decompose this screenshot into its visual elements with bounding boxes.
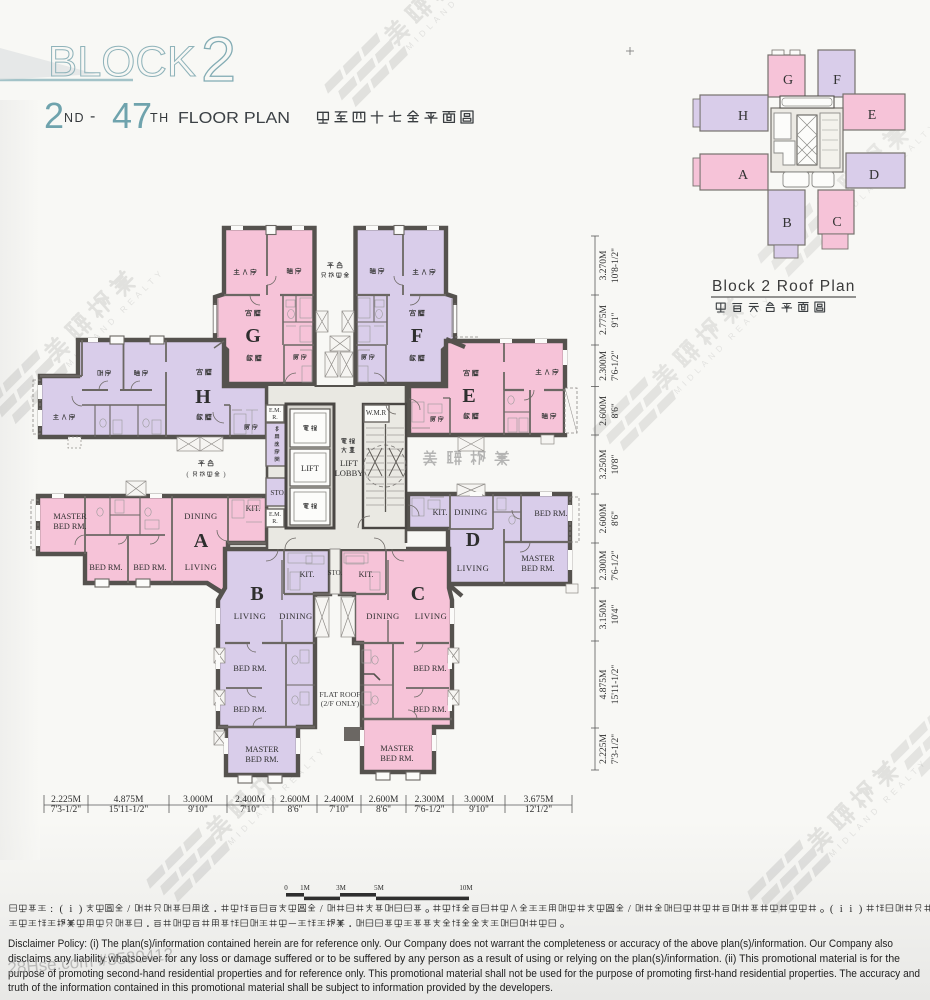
svg-text:2.300M: 2.300M bbox=[599, 350, 609, 380]
svg-text:KIT.: KIT. bbox=[300, 570, 315, 579]
svg-text:8'6": 8'6" bbox=[287, 805, 302, 815]
svg-text:LIFT: LIFT bbox=[301, 463, 320, 473]
svg-text:(2/F ONLY): (2/F ONLY) bbox=[321, 699, 360, 708]
svg-text:DINING: DINING bbox=[184, 511, 218, 521]
svg-text:MASTER: MASTER bbox=[245, 745, 279, 754]
svg-text:BED RM.: BED RM. bbox=[133, 563, 166, 572]
svg-text:F: F bbox=[411, 325, 423, 347]
svg-text:3M: 3M bbox=[336, 884, 347, 892]
svg-text:3.675M: 3.675M bbox=[524, 795, 554, 805]
svg-text:BED RM.: BED RM. bbox=[413, 664, 446, 673]
svg-text:G: G bbox=[783, 73, 793, 88]
svg-text:R.: R. bbox=[272, 519, 278, 525]
svg-text:purpose of promoting second-ha: purpose of promoting second-hand residen… bbox=[8, 968, 920, 980]
svg-text:3.000M: 3.000M bbox=[464, 795, 494, 805]
svg-text:DINING: DINING bbox=[454, 507, 488, 517]
svg-text:8'6": 8'6" bbox=[611, 511, 621, 526]
svg-text:2.600M: 2.600M bbox=[599, 503, 609, 533]
svg-text:BED RM.: BED RM. bbox=[233, 705, 266, 714]
svg-text:BLOCK: BLOCK bbox=[48, 38, 196, 86]
svg-text:3.270M: 3.270M bbox=[599, 250, 609, 280]
svg-text:10'8-1/2": 10'8-1/2" bbox=[611, 248, 621, 283]
svg-text:E: E bbox=[462, 385, 475, 407]
svg-text:E.M.: E.M. bbox=[269, 512, 282, 518]
svg-text:-: - bbox=[90, 108, 95, 125]
svg-text:BED RM.: BED RM. bbox=[245, 755, 278, 764]
svg-text:FLAT ROOF: FLAT ROOF bbox=[319, 690, 361, 699]
svg-text:FLOOR PLAN: FLOOR PLAN bbox=[178, 110, 290, 127]
svg-text:E: E bbox=[868, 108, 877, 123]
svg-text:BED RM.: BED RM. bbox=[521, 564, 554, 573]
svg-text:15'11-1/2": 15'11-1/2" bbox=[109, 805, 149, 815]
svg-text:9'10": 9'10" bbox=[469, 805, 489, 815]
svg-text:10M: 10M bbox=[459, 884, 473, 892]
svg-text:D: D bbox=[466, 529, 480, 551]
svg-text:): ) bbox=[859, 903, 863, 915]
svg-text:D: D bbox=[869, 168, 879, 183]
svg-text:2.600M: 2.600M bbox=[599, 395, 609, 425]
svg-text:A: A bbox=[738, 168, 749, 183]
svg-text:LIVING: LIVING bbox=[457, 563, 490, 573]
svg-text:C: C bbox=[832, 215, 841, 230]
svg-text:4.875M: 4.875M bbox=[599, 669, 609, 699]
svg-text:9'1": 9'1" bbox=[611, 312, 621, 327]
svg-text:5M: 5M bbox=[374, 884, 385, 892]
svg-text:/: / bbox=[628, 903, 631, 915]
svg-text:7'10": 7'10" bbox=[240, 805, 260, 815]
svg-text:Block 2 Roof Plan: Block 2 Roof Plan bbox=[712, 278, 856, 295]
svg-text:BED RM.: BED RM. bbox=[413, 705, 446, 714]
svg-text:ND: ND bbox=[64, 111, 85, 125]
svg-text:B: B bbox=[782, 216, 791, 231]
svg-text:8'6": 8'6" bbox=[611, 403, 621, 418]
svg-text:7'3-1/2": 7'3-1/2" bbox=[611, 734, 621, 765]
svg-text:15'11-1/2": 15'11-1/2" bbox=[611, 665, 621, 705]
svg-text:/: / bbox=[127, 903, 130, 915]
svg-text::: : bbox=[50, 903, 53, 915]
svg-text:/: / bbox=[320, 903, 323, 915]
svg-text:R.: R. bbox=[272, 415, 278, 421]
svg-text:0: 0 bbox=[284, 884, 288, 892]
svg-text:BED RM.: BED RM. bbox=[534, 509, 567, 518]
svg-text:9'10": 9'10" bbox=[188, 805, 208, 815]
svg-text:10'8": 10'8" bbox=[611, 454, 621, 474]
svg-text:8'6": 8'6" bbox=[376, 805, 391, 815]
svg-text:2.400M: 2.400M bbox=[324, 795, 354, 805]
svg-text:TH: TH bbox=[150, 111, 170, 125]
svg-text:STO.: STO. bbox=[328, 570, 343, 577]
svg-text:(: ( bbox=[60, 903, 64, 915]
svg-text:2.225M: 2.225M bbox=[51, 795, 81, 805]
svg-text:(: ( bbox=[830, 903, 834, 915]
svg-text:3.250M: 3.250M bbox=[599, 449, 609, 479]
svg-text:BED RM.: BED RM. bbox=[380, 754, 413, 763]
svg-text:BED RM.: BED RM. bbox=[53, 522, 86, 531]
svg-text:2.300M: 2.300M bbox=[599, 550, 609, 580]
svg-text:E.M.: E.M. bbox=[269, 408, 282, 414]
svg-text:2: 2 bbox=[201, 25, 236, 95]
svg-text:2.600M: 2.600M bbox=[280, 795, 310, 805]
svg-text:BED RM.: BED RM. bbox=[89, 563, 122, 572]
svg-text:2.775M: 2.775M bbox=[599, 305, 609, 335]
svg-text:): ) bbox=[79, 903, 83, 915]
svg-text:2.600M: 2.600M bbox=[369, 795, 399, 805]
svg-text:DINING: DINING bbox=[366, 611, 400, 621]
svg-text:7'6-1/2": 7'6-1/2" bbox=[414, 805, 445, 815]
svg-text:A: A bbox=[194, 530, 209, 552]
svg-text:2.300M: 2.300M bbox=[415, 795, 445, 805]
svg-text:LIVING: LIVING bbox=[185, 562, 218, 572]
svg-text:7'6-1/2": 7'6-1/2" bbox=[611, 350, 621, 381]
svg-text:B: B bbox=[250, 583, 263, 605]
svg-text:2.225M: 2.225M bbox=[599, 734, 609, 764]
svg-text:H: H bbox=[738, 109, 748, 124]
svg-text:2: 2 bbox=[44, 95, 64, 136]
svg-text:7'6-1/2": 7'6-1/2" bbox=[611, 550, 621, 581]
svg-text:7'3-1/2": 7'3-1/2" bbox=[51, 805, 82, 815]
svg-text:C: C bbox=[411, 583, 425, 605]
svg-text:LOBBY: LOBBY bbox=[335, 468, 364, 478]
svg-text:MASTER: MASTER bbox=[53, 512, 87, 521]
svg-text:7'10": 7'10" bbox=[329, 805, 349, 815]
svg-text:3.000M: 3.000M bbox=[183, 795, 213, 805]
svg-text:KIT.: KIT. bbox=[433, 508, 448, 517]
svg-text:i: i bbox=[69, 903, 72, 915]
svg-text:10'4": 10'4" bbox=[611, 604, 621, 624]
svg-text:G: G bbox=[245, 325, 261, 347]
svg-text:1M: 1M bbox=[300, 884, 311, 892]
svg-text:i: i bbox=[849, 903, 852, 915]
svg-text:LIFT: LIFT bbox=[340, 458, 359, 468]
svg-text:KIT.: KIT. bbox=[359, 570, 374, 579]
svg-text:STO.: STO. bbox=[270, 489, 285, 497]
svg-text:MASTER: MASTER bbox=[380, 744, 414, 753]
svg-text:DINING: DINING bbox=[279, 611, 313, 621]
svg-text:truth of the information conta: truth of the information contained in th… bbox=[8, 982, 553, 994]
svg-text:i: i bbox=[840, 903, 843, 915]
svg-text:H: H bbox=[195, 386, 211, 408]
svg-text:MASTER: MASTER bbox=[521, 554, 555, 563]
svg-text:47: 47 bbox=[112, 95, 152, 136]
svg-text:F: F bbox=[833, 73, 841, 88]
svg-text:12'1/2": 12'1/2" bbox=[525, 805, 552, 815]
svg-text:BED RM.: BED RM. bbox=[233, 664, 266, 673]
svg-text:W.M.R: W.M.R bbox=[366, 409, 387, 417]
svg-text:3.150M: 3.150M bbox=[599, 599, 609, 629]
svg-text:2.400M: 2.400M bbox=[235, 795, 265, 805]
svg-text:LIVING: LIVING bbox=[415, 611, 448, 621]
svg-text:LIVING: LIVING bbox=[234, 611, 267, 621]
svg-text:4.875M: 4.875M bbox=[114, 795, 144, 805]
